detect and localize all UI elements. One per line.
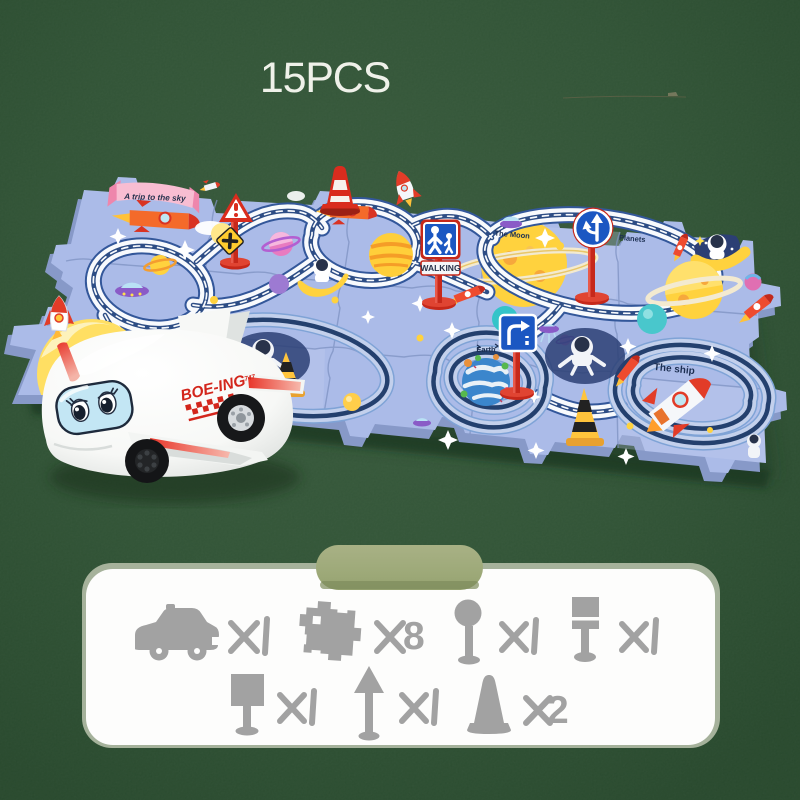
svg-text:8: 8 xyxy=(403,615,425,658)
svg-text:WALKING: WALKING xyxy=(420,263,461,273)
svg-text:15PCS: 15PCS xyxy=(260,54,390,102)
svg-text:2: 2 xyxy=(547,689,569,732)
